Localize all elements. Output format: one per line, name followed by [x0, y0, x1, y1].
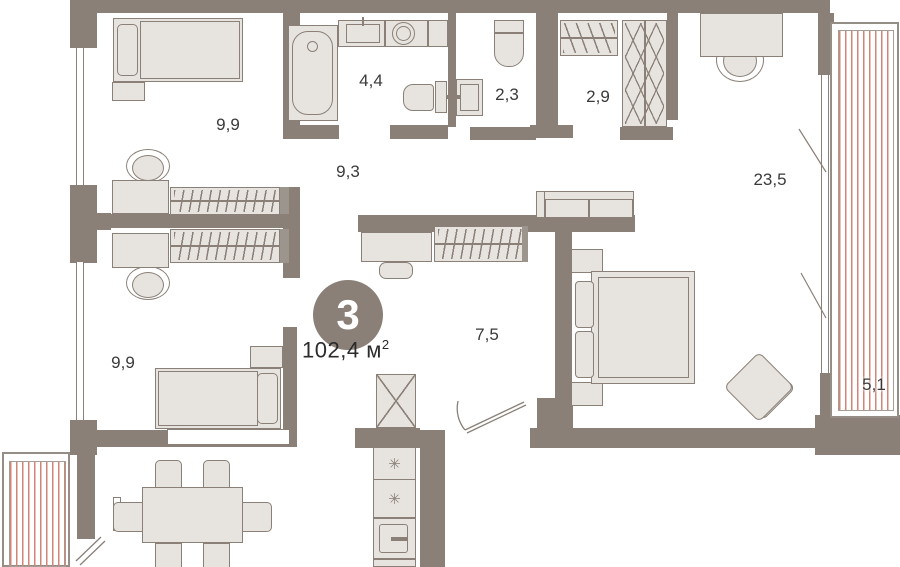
wall-segment — [70, 0, 97, 48]
sink — [346, 24, 380, 43]
wall-segment — [470, 127, 536, 140]
nightstand — [571, 382, 603, 406]
washing-machine-drum — [396, 26, 411, 41]
wall-segment — [667, 13, 678, 120]
sofa-cushion — [545, 199, 589, 218]
toilet — [494, 20, 524, 67]
toilet-bowl — [403, 84, 434, 111]
balcony-decking — [838, 30, 894, 411]
bed-platform — [167, 429, 290, 445]
wardrobe-rail — [170, 245, 280, 247]
wall-segment — [97, 214, 300, 228]
faucet-icon — [362, 17, 364, 26]
window — [821, 75, 829, 373]
pillow — [257, 373, 278, 424]
wall-segment — [815, 415, 900, 455]
wall-segment — [288, 187, 300, 214]
wall-segment — [530, 428, 830, 448]
balcony-door-leaf — [76, 537, 105, 565]
wall-segment — [420, 430, 445, 567]
dining-table — [142, 487, 243, 543]
window — [76, 48, 84, 185]
pillow — [117, 24, 138, 76]
console-table — [361, 232, 432, 262]
dining-chair — [242, 502, 272, 532]
desk — [700, 13, 783, 57]
wardrobe-rail — [434, 243, 527, 245]
shelf-line — [560, 37, 618, 39]
wardrobe-divider — [644, 20, 646, 127]
stove-burner: ✳ — [373, 447, 416, 480]
entrance-door-leaf — [465, 402, 526, 433]
wall-segment — [620, 127, 673, 140]
room-area-label-bedroom-top: 9,9 — [216, 115, 240, 135]
total-area-label: 102,4 м2 — [302, 337, 390, 363]
wardrobe-side-panel — [280, 229, 289, 263]
sofa-armrest — [536, 191, 545, 218]
armchair-seat — [724, 352, 795, 423]
room-area-label-wc: 2,3 — [495, 85, 519, 105]
wall-segment — [77, 447, 95, 539]
oven-handle — [391, 537, 408, 541]
wall-segment — [448, 13, 456, 127]
total-area-unit: м — [366, 337, 382, 362]
desk — [112, 180, 169, 214]
room-area-label-living: 23,5 — [753, 170, 786, 190]
wall-segment — [70, 185, 97, 263]
floor-plan: ✳ ✳ 9,9 4,4 2,3 2,9 23,5 9,3 7,5 9,9 5,1… — [0, 0, 900, 567]
wall-segment — [355, 428, 420, 448]
total-area-value: 102,4 — [302, 337, 360, 362]
mattress — [158, 371, 258, 426]
mattress — [140, 21, 240, 79]
room-area-label-bathroom: 4,4 — [359, 71, 383, 91]
room-area-label-bedroom-bottom: 9,9 — [111, 353, 135, 373]
dining-chair — [203, 543, 230, 567]
counter-divider — [384, 20, 386, 47]
sink-basin — [460, 84, 479, 111]
wall-segment — [530, 125, 573, 138]
pillow — [575, 281, 594, 328]
nightstand — [112, 82, 145, 101]
wall-segment — [70, 0, 830, 13]
kitchen-unit — [373, 559, 416, 567]
dining-chair — [113, 502, 143, 532]
desk — [112, 233, 169, 268]
room-area-label-inner-hall: 7,5 — [475, 325, 499, 345]
room-area-label-balcony: 5,1 — [862, 375, 886, 395]
pillow — [575, 331, 594, 378]
total-area-exponent: 2 — [382, 337, 390, 352]
counter-divider — [427, 20, 429, 47]
balcony-decking — [9, 461, 66, 567]
stove-burner: ✳ — [373, 479, 416, 518]
wall-segment — [283, 125, 339, 139]
wall-segment — [390, 125, 448, 139]
entrance-door-arc — [457, 401, 465, 430]
dining-chair — [155, 543, 182, 567]
toilet-tank-line — [494, 32, 524, 34]
bathtub-drain — [307, 41, 318, 52]
mattress — [598, 277, 689, 378]
faucet-icon — [446, 95, 460, 99]
room-area-label-hallway: 9,3 — [336, 162, 360, 182]
wardrobe-side-panel — [522, 226, 528, 262]
desk-chair — [132, 272, 164, 298]
wall-segment — [536, 13, 558, 138]
desk-chair — [132, 155, 164, 181]
wardrobe-rail — [170, 200, 280, 202]
nightstand — [571, 249, 603, 273]
nightstand — [250, 346, 283, 368]
window — [76, 262, 84, 420]
storage-cabinet — [376, 374, 416, 428]
sofa-cushion — [589, 199, 633, 218]
stool — [379, 262, 413, 279]
room-area-label-closet: 2,9 — [586, 87, 610, 107]
dining-chair — [155, 460, 182, 488]
dining-chair — [203, 460, 230, 488]
wardrobe-side-panel — [280, 187, 289, 214]
